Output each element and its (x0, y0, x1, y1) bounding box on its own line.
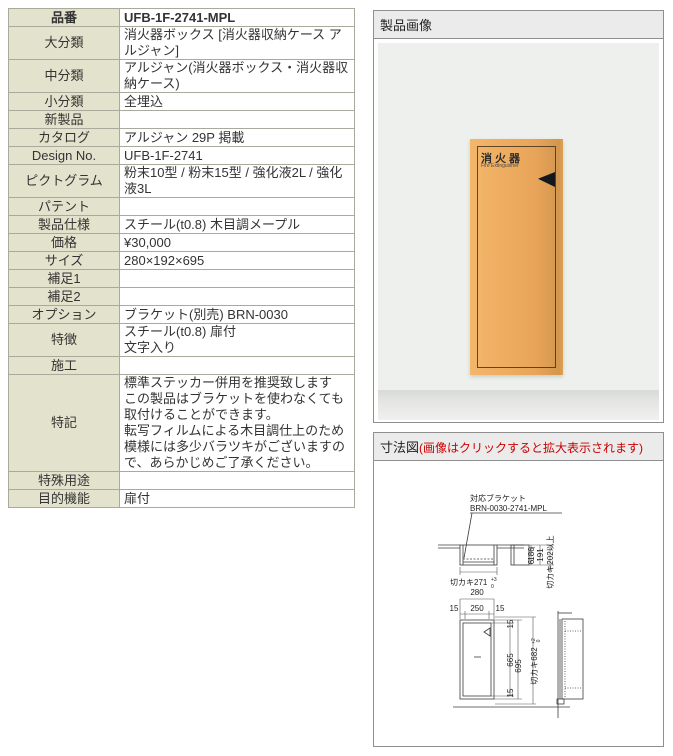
dim-cut-width-tol-plus: +3 (491, 577, 497, 583)
side-view (557, 611, 583, 718)
spec-value: 280×192×695 (120, 252, 355, 270)
spec-label: 小分類 (9, 93, 120, 111)
table-row: 特記 標準ステッカー併用を推奨致します この製品はブラケットを使わなくても取付け… (9, 375, 355, 472)
product-image-panel-title: 製品画像 (374, 11, 663, 39)
spec-value (120, 111, 355, 129)
dimension-drawing-svg: 対応ブラケット BRN-0030-2741-MPL (374, 461, 661, 748)
spec-value: アルジャン 29P 掲載 (120, 129, 355, 147)
table-row: カタログ アルジャン 29P 掲載 (9, 129, 355, 147)
table-row: 中分類 アルジャン(消火器ボックス・消火器収納ケース) (9, 60, 355, 93)
spec-value (120, 357, 355, 375)
spec-label: ピクトグラム (9, 165, 120, 198)
spec-label: オプション (9, 306, 120, 324)
bracket-code: BRN-0030-2741-MPL (470, 504, 547, 513)
dimension-panel: 寸法図(画像はクリックすると拡大表示されます) 対応ブラケット BRN-0030… (373, 432, 664, 747)
click-to-enlarge-note: (画像はクリックすると拡大表示されます) (419, 441, 643, 455)
spec-label: 特記 (9, 375, 120, 472)
dim-15-right: 15 (496, 604, 505, 613)
table-row: 製品仕様 スチール(t0.8) 木目調メープル (9, 216, 355, 234)
spec-label: 施工 (9, 357, 120, 375)
dim-15-bottom: 15 (506, 688, 515, 697)
dim-cut-width-tol-zero: 0 (491, 584, 494, 590)
spec-value: スチール(t0.8) 扉付 文字入り (120, 324, 355, 357)
spec-value: 消火器ボックス [消火器収納ケース アルジャン] (120, 27, 355, 60)
spec-value: UFB-1F-2741 (120, 147, 355, 165)
box-english-label: Fire Extinguisher (481, 163, 519, 169)
spec-label: 補足1 (9, 270, 120, 288)
table-row: 補足1 (9, 270, 355, 288)
dimension-drawing[interactable]: 対応ブラケット BRN-0030-2741-MPL (374, 461, 661, 748)
spec-value: ブラケット(別売) BRN-0030 (120, 306, 355, 324)
dim-191: 191 (536, 548, 545, 562)
spec-value: UFB-1F-2741-MPL (120, 9, 355, 27)
table-row: 品番 UFB-1F-2741-MPL (9, 9, 355, 27)
spec-value (120, 472, 355, 490)
spec-label: 中分類 (9, 60, 120, 93)
spec-label: カタログ (9, 129, 120, 147)
table-row: 新製品 (9, 111, 355, 129)
dim-cut-height: 切カキ682 (530, 647, 539, 685)
table-row: 大分類 消火器ボックス [消火器収納ケース アルジャン] (9, 27, 355, 60)
table-row: 小分類 全埋込 (9, 93, 355, 111)
spec-label: 大分類 (9, 27, 120, 60)
table-row: パテント (9, 198, 355, 216)
spec-label: 新製品 (9, 111, 120, 129)
spec-label: 特殊用途 (9, 472, 120, 490)
product-catalog-page: 品番 UFB-1F-2741-MPL 大分類 消火器ボックス [消火器収納ケース… (0, 0, 673, 756)
spec-label: 特徴 (9, 324, 120, 357)
dim-186: 186 (527, 547, 536, 561)
dim-695: 695 (514, 659, 523, 673)
spec-value: 粉末10型 / 粉末15型 / 強化液2L / 強化液3L (120, 165, 355, 198)
table-row: サイズ 280×192×695 (9, 252, 355, 270)
dim-cut-height-tol-zero: 0 (536, 639, 542, 642)
product-photo: 消火器 Fire Extinguisher (378, 43, 659, 420)
spec-value: 標準ステッカー併用を推奨致します この製品はブラケットを使わなくても取付けること… (120, 375, 355, 472)
table-row: 特殊用途 (9, 472, 355, 490)
dimension-panel-title: 寸法図(画像はクリックすると拡大表示されます) (374, 433, 663, 461)
spec-value: ¥30,000 (120, 234, 355, 252)
spec-label: サイズ (9, 252, 120, 270)
table-row: 施工 (9, 357, 355, 375)
spec-label: 目的機能 (9, 490, 120, 508)
spec-value (120, 288, 355, 306)
spec-label: パテント (9, 198, 120, 216)
dim-cut-width: 切カキ271 (450, 578, 488, 587)
dim-250: 250 (470, 604, 484, 613)
spec-label: 価格 (9, 234, 120, 252)
spec-label: 補足2 (9, 288, 120, 306)
spec-label: Design No. (9, 147, 120, 165)
table-row: 目的機能 扉付 (9, 490, 355, 508)
dimension-title-text: 寸法図 (380, 440, 419, 455)
photo-floor (378, 390, 659, 420)
table-row: ピクトグラム 粉末10型 / 粉末15型 / 強化液2L / 強化液3L (9, 165, 355, 198)
table-row: Design No. UFB-1F-2741 (9, 147, 355, 165)
table-row: 特徴 スチール(t0.8) 扉付 文字入り (9, 324, 355, 357)
spec-table: 品番 UFB-1F-2741-MPL 大分類 消火器ボックス [消火器収納ケース… (8, 8, 355, 508)
table-row: オプション ブラケット(別売) BRN-0030 (9, 306, 355, 324)
dim-15-left: 15 (450, 604, 459, 613)
dim-15-top: 15 (506, 619, 515, 628)
spec-value: アルジャン(消火器ボックス・消火器収納ケース) (120, 60, 355, 93)
spec-value (120, 198, 355, 216)
product-image-panel: 製品画像 消火器 Fire Extinguisher (373, 10, 664, 423)
spec-value: 扉付 (120, 490, 355, 508)
table-row: 補足2 (9, 288, 355, 306)
dim-280: 280 (470, 588, 484, 597)
spec-label: 製品仕様 (9, 216, 120, 234)
bracket-label: 対応ブラケット (470, 493, 526, 503)
spec-label: 品番 (9, 9, 120, 27)
spec-value: 全埋込 (120, 93, 355, 111)
dim-cut-depth: 切カキ202以上 (546, 535, 555, 588)
spec-value: スチール(t0.8) 木目調メープル (120, 216, 355, 234)
fire-extinguisher-box-image: 消火器 Fire Extinguisher (470, 139, 563, 375)
spec-value (120, 270, 355, 288)
table-row: 価格 ¥30,000 (9, 234, 355, 252)
